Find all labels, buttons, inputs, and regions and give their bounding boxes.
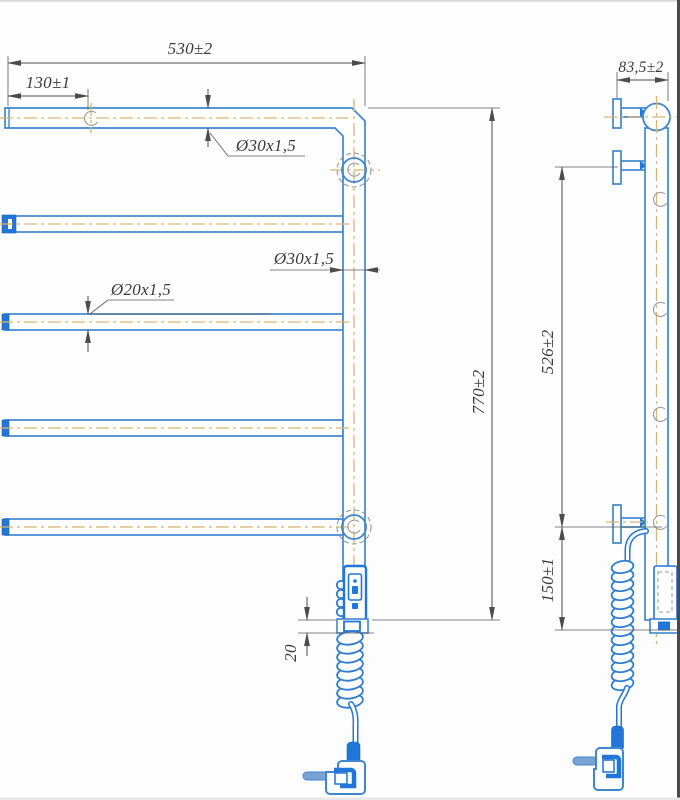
- front-dimensions: 530±2 130±1 Ø30x1,5 Ø30x1,5 Ø20x1,5: [8, 39, 500, 662]
- dim-post-tube-label: Ø30x1,5: [273, 249, 334, 268]
- dim-rung-tube-label: Ø20x1,5: [110, 280, 171, 299]
- side-cord-lead: [612, 688, 628, 751]
- wall-brackets: [613, 99, 647, 543]
- dim-overall-height-label: 770±2: [469, 369, 488, 414]
- technical-drawing: 530±2 130±1 Ø30x1,5 Ø30x1,5 Ø20x1,5: [0, 0, 680, 800]
- dim-bracket-to-bottom-label: 150±1: [538, 558, 557, 603]
- front-view: 530±2 130±1 Ø30x1,5 Ø30x1,5 Ø20x1,5: [0, 39, 500, 794]
- controller-button: [352, 603, 358, 609]
- top-border: [0, 0, 680, 2]
- frame-tube: [5, 108, 365, 620]
- side-power-plug: [573, 748, 623, 790]
- centerlines: [0, 99, 380, 645]
- dim-overall-width-label: 530±2: [168, 39, 213, 58]
- side-view: 83,5±2 526±2 150±1: [538, 59, 680, 790]
- bar-end-caps: [2, 215, 16, 535]
- side-spiral-cord: [611, 559, 635, 692]
- side-plug-pin: [573, 757, 597, 765]
- spiral-cord: [336, 630, 364, 709]
- side-cord-elbow: [628, 531, 647, 561]
- dim-top-tube-label: Ø30x1,5: [235, 136, 296, 155]
- side-controller: [650, 566, 678, 633]
- dim-controller-clearance-label: 20: [281, 644, 300, 662]
- drawing-canvas: 530±2 130±1 Ø30x1,5 Ø30x1,5 Ø20x1,5: [0, 0, 680, 800]
- dim-bracket-offset-label: 130±1: [26, 73, 71, 92]
- plug-pin: [303, 772, 328, 780]
- cord-lead: [347, 704, 360, 768]
- dim-depth-label: 83,5±2: [618, 59, 663, 76]
- dim-bracket-spacing-label: 526±2: [538, 329, 557, 374]
- power-plug: [303, 761, 365, 794]
